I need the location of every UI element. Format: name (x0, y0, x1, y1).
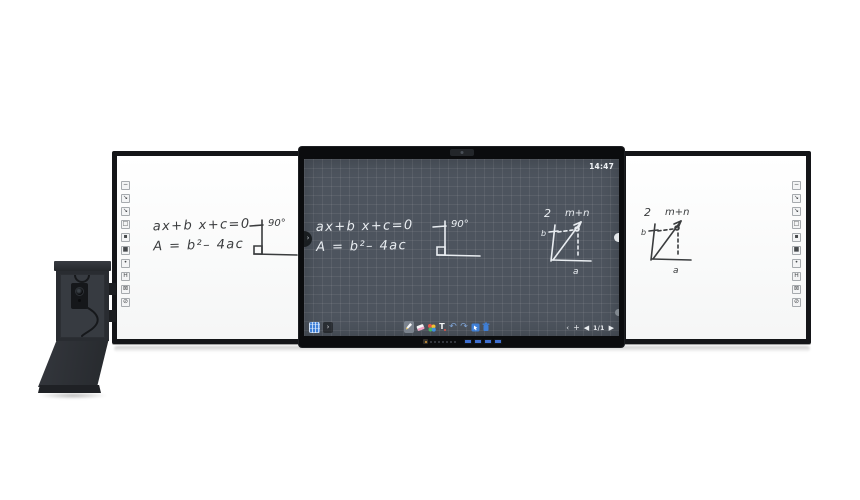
whiteboard-canvas[interactable]: 14:47 › ax+b x+c=0 A = b²– 4ac 90° 2 m+n (304, 159, 619, 336)
front-camera-icon (460, 151, 463, 154)
usb-port (474, 339, 482, 344)
right-board-vector-figure: 2 m+n b a (640, 202, 704, 276)
screen-equations: ax+b x+c=0 A = b²– 4ac (316, 216, 415, 258)
text-tool-button[interactable]: T (437, 321, 447, 333)
figure-left-label: b (641, 228, 646, 237)
power-button[interactable] (423, 339, 428, 344)
highlight-icon[interactable]: H (121, 272, 130, 281)
prev-page-button[interactable]: ◀ (584, 323, 589, 333)
bezel-button[interactable] (430, 341, 432, 343)
palette-button[interactable] (426, 321, 436, 333)
right-whiteboard-surface[interactable]: − ↘ ↘ □ ▪ ■ • H ⊠ ⊘ 2 m+n b a (626, 156, 806, 339)
bezel-button[interactable] (446, 341, 448, 343)
document-camera-box (38, 261, 116, 401)
delete-button[interactable] (481, 321, 491, 333)
usb-port (494, 339, 502, 344)
left-board-angle-figure: 90° (241, 214, 299, 260)
next-page-button[interactable]: ▶ (609, 323, 614, 333)
device-top-cap (54, 261, 111, 271)
eraser-button[interactable] (415, 321, 425, 333)
figure-title: m+n (665, 207, 689, 218)
product-scene: − ↘ ↘ □ ▪ ■ • H ⊠ ⊘ ax+b x+c=0 A = b²– 4… (0, 0, 860, 500)
redo-icon: ↷ (460, 323, 468, 332)
pen-button[interactable] (404, 321, 414, 333)
pen-thin-icon[interactable]: ↘ (121, 194, 130, 203)
open-flap-door (38, 340, 110, 387)
figure-bottom-label: a (573, 267, 579, 277)
pen-thick-icon[interactable]: ↘ (792, 207, 801, 216)
dot-small-icon[interactable]: ▪ (121, 233, 130, 242)
eraser-icon[interactable]: □ (121, 220, 130, 229)
bezel-button[interactable] (454, 341, 456, 343)
angle-label: 90° (268, 218, 286, 229)
equation-line-2: A = b²– 4ac (153, 235, 251, 258)
pen-thin-icon[interactable]: ↘ (792, 194, 801, 203)
interactive-display: 14:47 › ax+b x+c=0 A = b²– 4ac 90° 2 m+n (299, 147, 624, 347)
pen-thick-icon[interactable]: ↘ (121, 207, 130, 216)
highlight-icon[interactable]: H (792, 272, 801, 281)
trash-icon (482, 322, 490, 332)
left-tool-strip: − ↘ ↘ □ ▪ ■ • H ⊠ ⊘ (121, 181, 130, 307)
collapse-nav-button[interactable]: ‹ (566, 323, 569, 333)
right-edge-handle[interactable] (614, 233, 619, 242)
angle-label: 90° (451, 219, 469, 230)
clock: 14:47 (589, 162, 614, 171)
figure-index: 2 (644, 206, 651, 219)
line-tool-icon[interactable]: − (792, 181, 801, 190)
usb-port (464, 339, 472, 344)
device-shadow (38, 392, 108, 399)
usb-port-row (464, 339, 502, 344)
bezel-button[interactable] (438, 341, 440, 343)
camera-cable (60, 301, 105, 339)
camera-lens-icon (75, 287, 84, 296)
figure-title: m+n (565, 208, 589, 219)
dot-large-icon[interactable]: • (121, 259, 130, 268)
select-icon (471, 323, 480, 332)
dot-medium-icon[interactable]: ■ (792, 246, 801, 255)
left-whiteboard-surface[interactable]: − ↘ ↘ □ ▪ ■ • H ⊠ ⊘ ax+b x+c=0 A = b²– 4… (117, 156, 299, 339)
flap-front-lip (38, 385, 101, 393)
front-camera-module (450, 149, 474, 156)
eraser-icon (416, 323, 425, 332)
toolbar-center-group: T ↶ ↷ (404, 321, 491, 333)
pen-icon (405, 322, 413, 332)
eraser-icon[interactable]: □ (792, 220, 801, 229)
dot-large-icon[interactable]: • (792, 259, 801, 268)
figure-index: 2 (544, 207, 551, 220)
usb-port (484, 339, 492, 344)
select-button[interactable] (470, 321, 480, 333)
page-indicator: 1/1 (593, 325, 604, 332)
expand-toolbar-button[interactable]: › (323, 322, 333, 333)
line-tool-icon[interactable]: − (121, 181, 130, 190)
bezel-button[interactable] (450, 341, 452, 343)
clear-all-icon[interactable]: ⊘ (792, 298, 801, 307)
palette-icon (427, 323, 436, 332)
equation-line-2: A = b²– 4ac (316, 236, 414, 258)
toolbar-page-nav: ‹ + ◀ 1/1 ▶ (566, 323, 614, 333)
toolbar-left-group: › (309, 322, 333, 333)
left-board-equations: ax+b x+c=0 A = b²– 4ac (152, 215, 251, 258)
clear-box-icon[interactable]: ⊠ (792, 285, 801, 294)
redo-button[interactable]: ↷ (459, 321, 469, 333)
undo-button[interactable]: ↶ (448, 321, 458, 333)
bezel-button[interactable] (442, 341, 444, 343)
add-page-button[interactable]: + (573, 323, 580, 333)
right-tool-strip: − ↘ ↘ □ ▪ ■ • H ⊠ ⊘ (792, 181, 801, 307)
left-edge-handle[interactable]: › (304, 231, 312, 247)
text-tool-dot (444, 329, 446, 331)
equation-line-1: ax+b x+c=0 (316, 216, 414, 238)
undo-icon: ↶ (449, 323, 457, 332)
figure-bottom-label: a (673, 266, 679, 276)
clear-box-icon[interactable]: ⊠ (121, 285, 130, 294)
dot-small-icon[interactable]: ▪ (792, 233, 801, 242)
bezel-button[interactable] (434, 341, 436, 343)
screen-vector-figure: 2 m+n b a (540, 203, 604, 277)
right-edge-handle-lower[interactable] (615, 309, 619, 316)
dot-medium-icon[interactable]: ■ (121, 246, 130, 255)
equation-line-1: ax+b x+c=0 (152, 215, 250, 238)
power-led (425, 341, 427, 343)
figure-left-label: b (541, 229, 546, 238)
screen-angle-figure: 90° (424, 215, 482, 261)
front-control-panel (423, 338, 502, 345)
apps-grid-icon[interactable] (309, 322, 320, 333)
clear-all-icon[interactable]: ⊘ (121, 298, 130, 307)
